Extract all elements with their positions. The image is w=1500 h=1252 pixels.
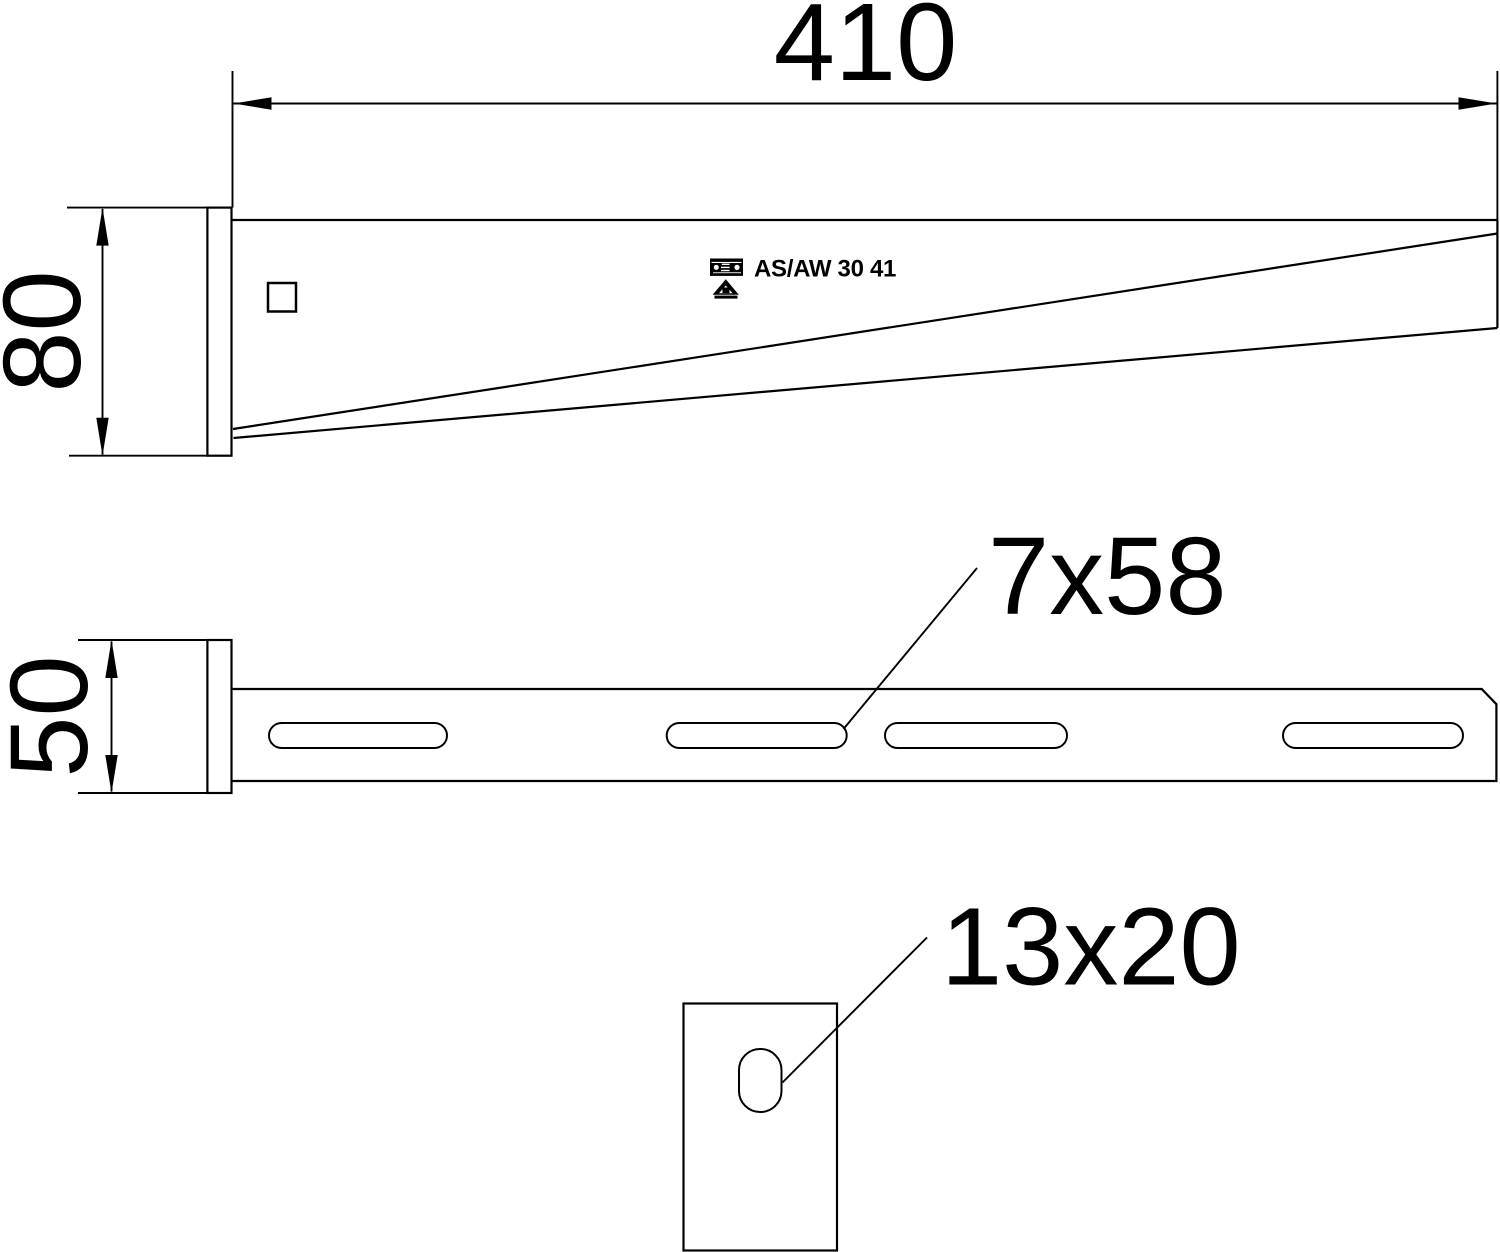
svg-text:7x58: 7x58 [988, 515, 1227, 638]
svg-text:80: 80 [0, 270, 104, 392]
svg-text:AS/AW 30 41: AS/AW 30 41 [754, 256, 896, 283]
svg-text:13x20: 13x20 [941, 886, 1241, 1009]
svg-text:410: 410 [774, 0, 958, 104]
svg-text:50: 50 [0, 655, 111, 777]
